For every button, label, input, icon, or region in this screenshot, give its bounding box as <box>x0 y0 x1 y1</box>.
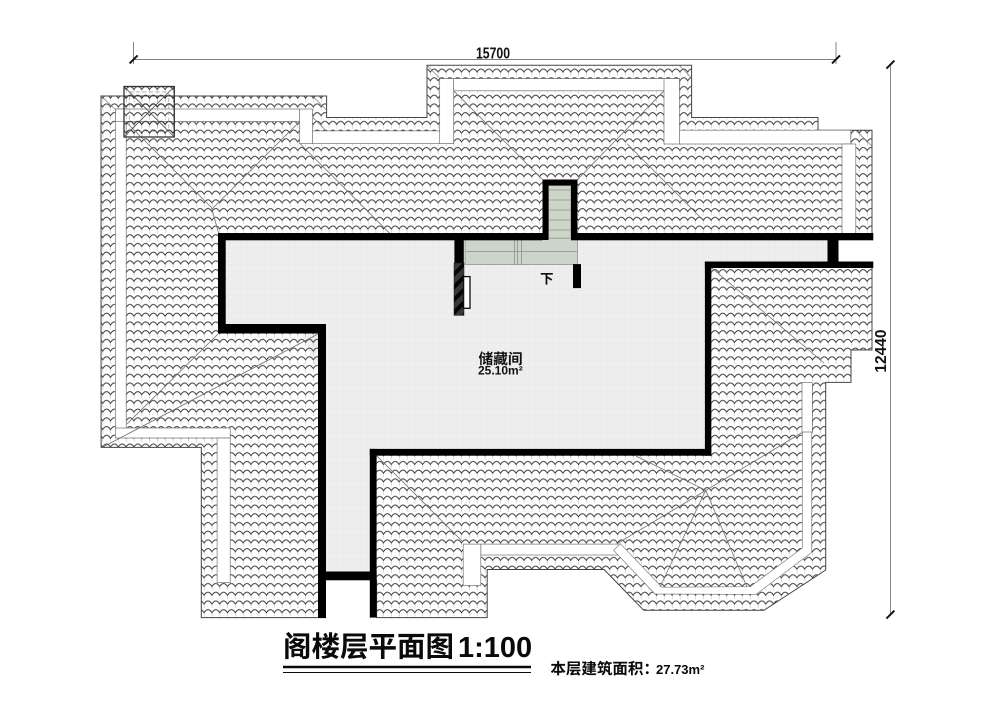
svg-text:15700: 15700 <box>476 46 510 63</box>
svg-text:25.10m²: 25.10m² <box>478 364 523 378</box>
svg-text:1:100: 1:100 <box>458 632 532 664</box>
svg-text:12440: 12440 <box>873 329 890 372</box>
svg-text:27.73m²: 27.73m² <box>656 662 705 677</box>
